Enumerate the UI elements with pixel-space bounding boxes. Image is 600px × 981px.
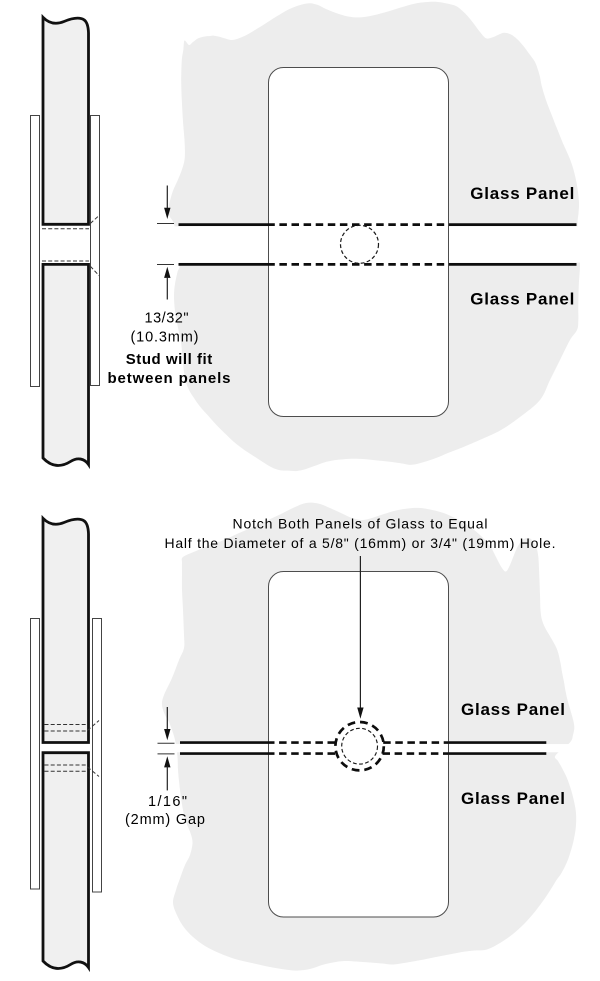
svg-text:Glass Panel: Glass Panel [461, 700, 565, 719]
svg-text:(10.3mm): (10.3mm) [131, 329, 199, 345]
svg-text:Glass Panel: Glass Panel [470, 184, 574, 203]
svg-text:Notch Both Panels of Glass to: Notch Both Panels of Glass to Equal [233, 516, 488, 532]
svg-text:Glass Panel: Glass Panel [470, 290, 574, 309]
svg-text:Half the Diameter of a 5/8" (1: Half the Diameter of a 5/8" (16mm) or 3/… [165, 535, 556, 551]
svg-text:13/32": 13/32" [145, 311, 189, 327]
svg-text:between panels: between panels [108, 370, 231, 387]
svg-text:(2mm) Gap: (2mm) Gap [125, 812, 205, 828]
svg-text:1/16": 1/16" [148, 794, 187, 810]
svg-text:Stud will fit: Stud will fit [126, 351, 213, 368]
svg-text:Glass Panel: Glass Panel [461, 789, 565, 808]
